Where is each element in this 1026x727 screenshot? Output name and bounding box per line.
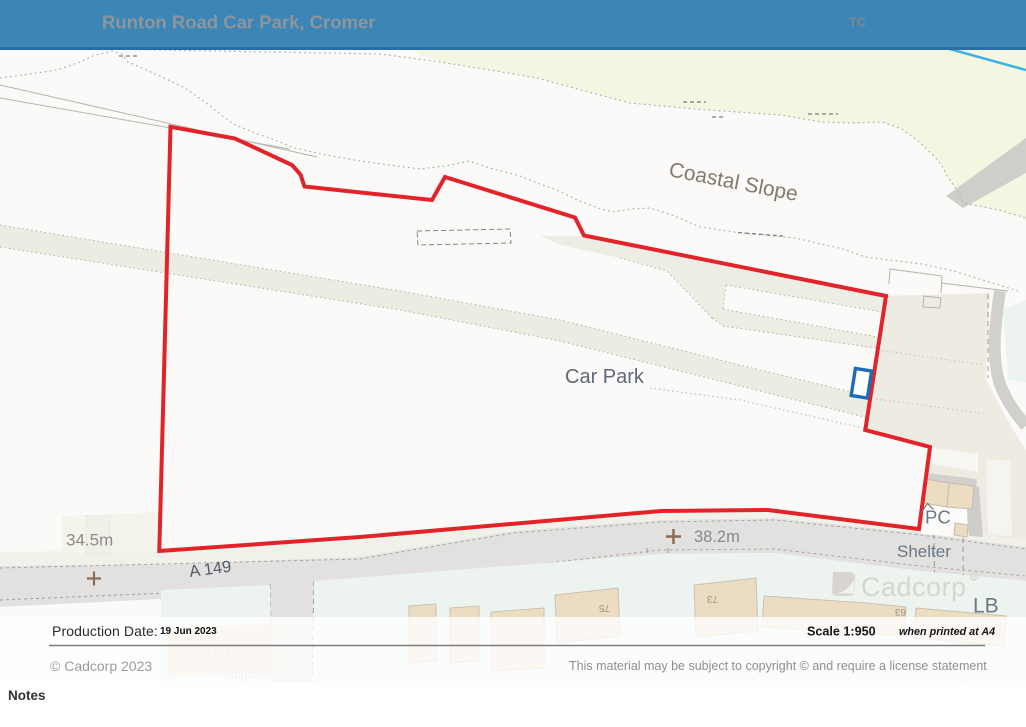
svg-text:Car Park: Car Park [565, 366, 645, 388]
svg-text:LB: LB [973, 595, 999, 618]
svg-text:Notes: Notes [8, 688, 46, 703]
svg-text:TC: TC [849, 15, 866, 30]
svg-text:73: 73 [706, 593, 718, 604]
svg-text:Cadcorp: Cadcorp [861, 572, 967, 602]
svg-text:63: 63 [894, 606, 906, 617]
svg-text:Shelter: Shelter [897, 542, 951, 561]
svg-text:34.5m: 34.5m [66, 531, 113, 550]
svg-text:R: R [972, 574, 977, 581]
svg-text:Runton Road Car Park, Cromer: Runton Road Car Park, Cromer [102, 12, 375, 33]
svg-text:38.2m: 38.2m [694, 528, 740, 546]
svg-text:19 Jun 2023: 19 Jun 2023 [160, 626, 217, 637]
svg-text:This material may be subject t: This material may be subject to copyrigh… [569, 659, 987, 673]
svg-text:Production Date:: Production Date: [52, 623, 158, 639]
svg-text:PC: PC [925, 507, 951, 528]
svg-text:Scale 1:950: Scale 1:950 [807, 625, 876, 639]
svg-text:when printed at A4: when printed at A4 [899, 626, 995, 638]
svg-text:75: 75 [598, 602, 610, 613]
svg-text:© Cadcorp 2023: © Cadcorp 2023 [50, 658, 152, 674]
